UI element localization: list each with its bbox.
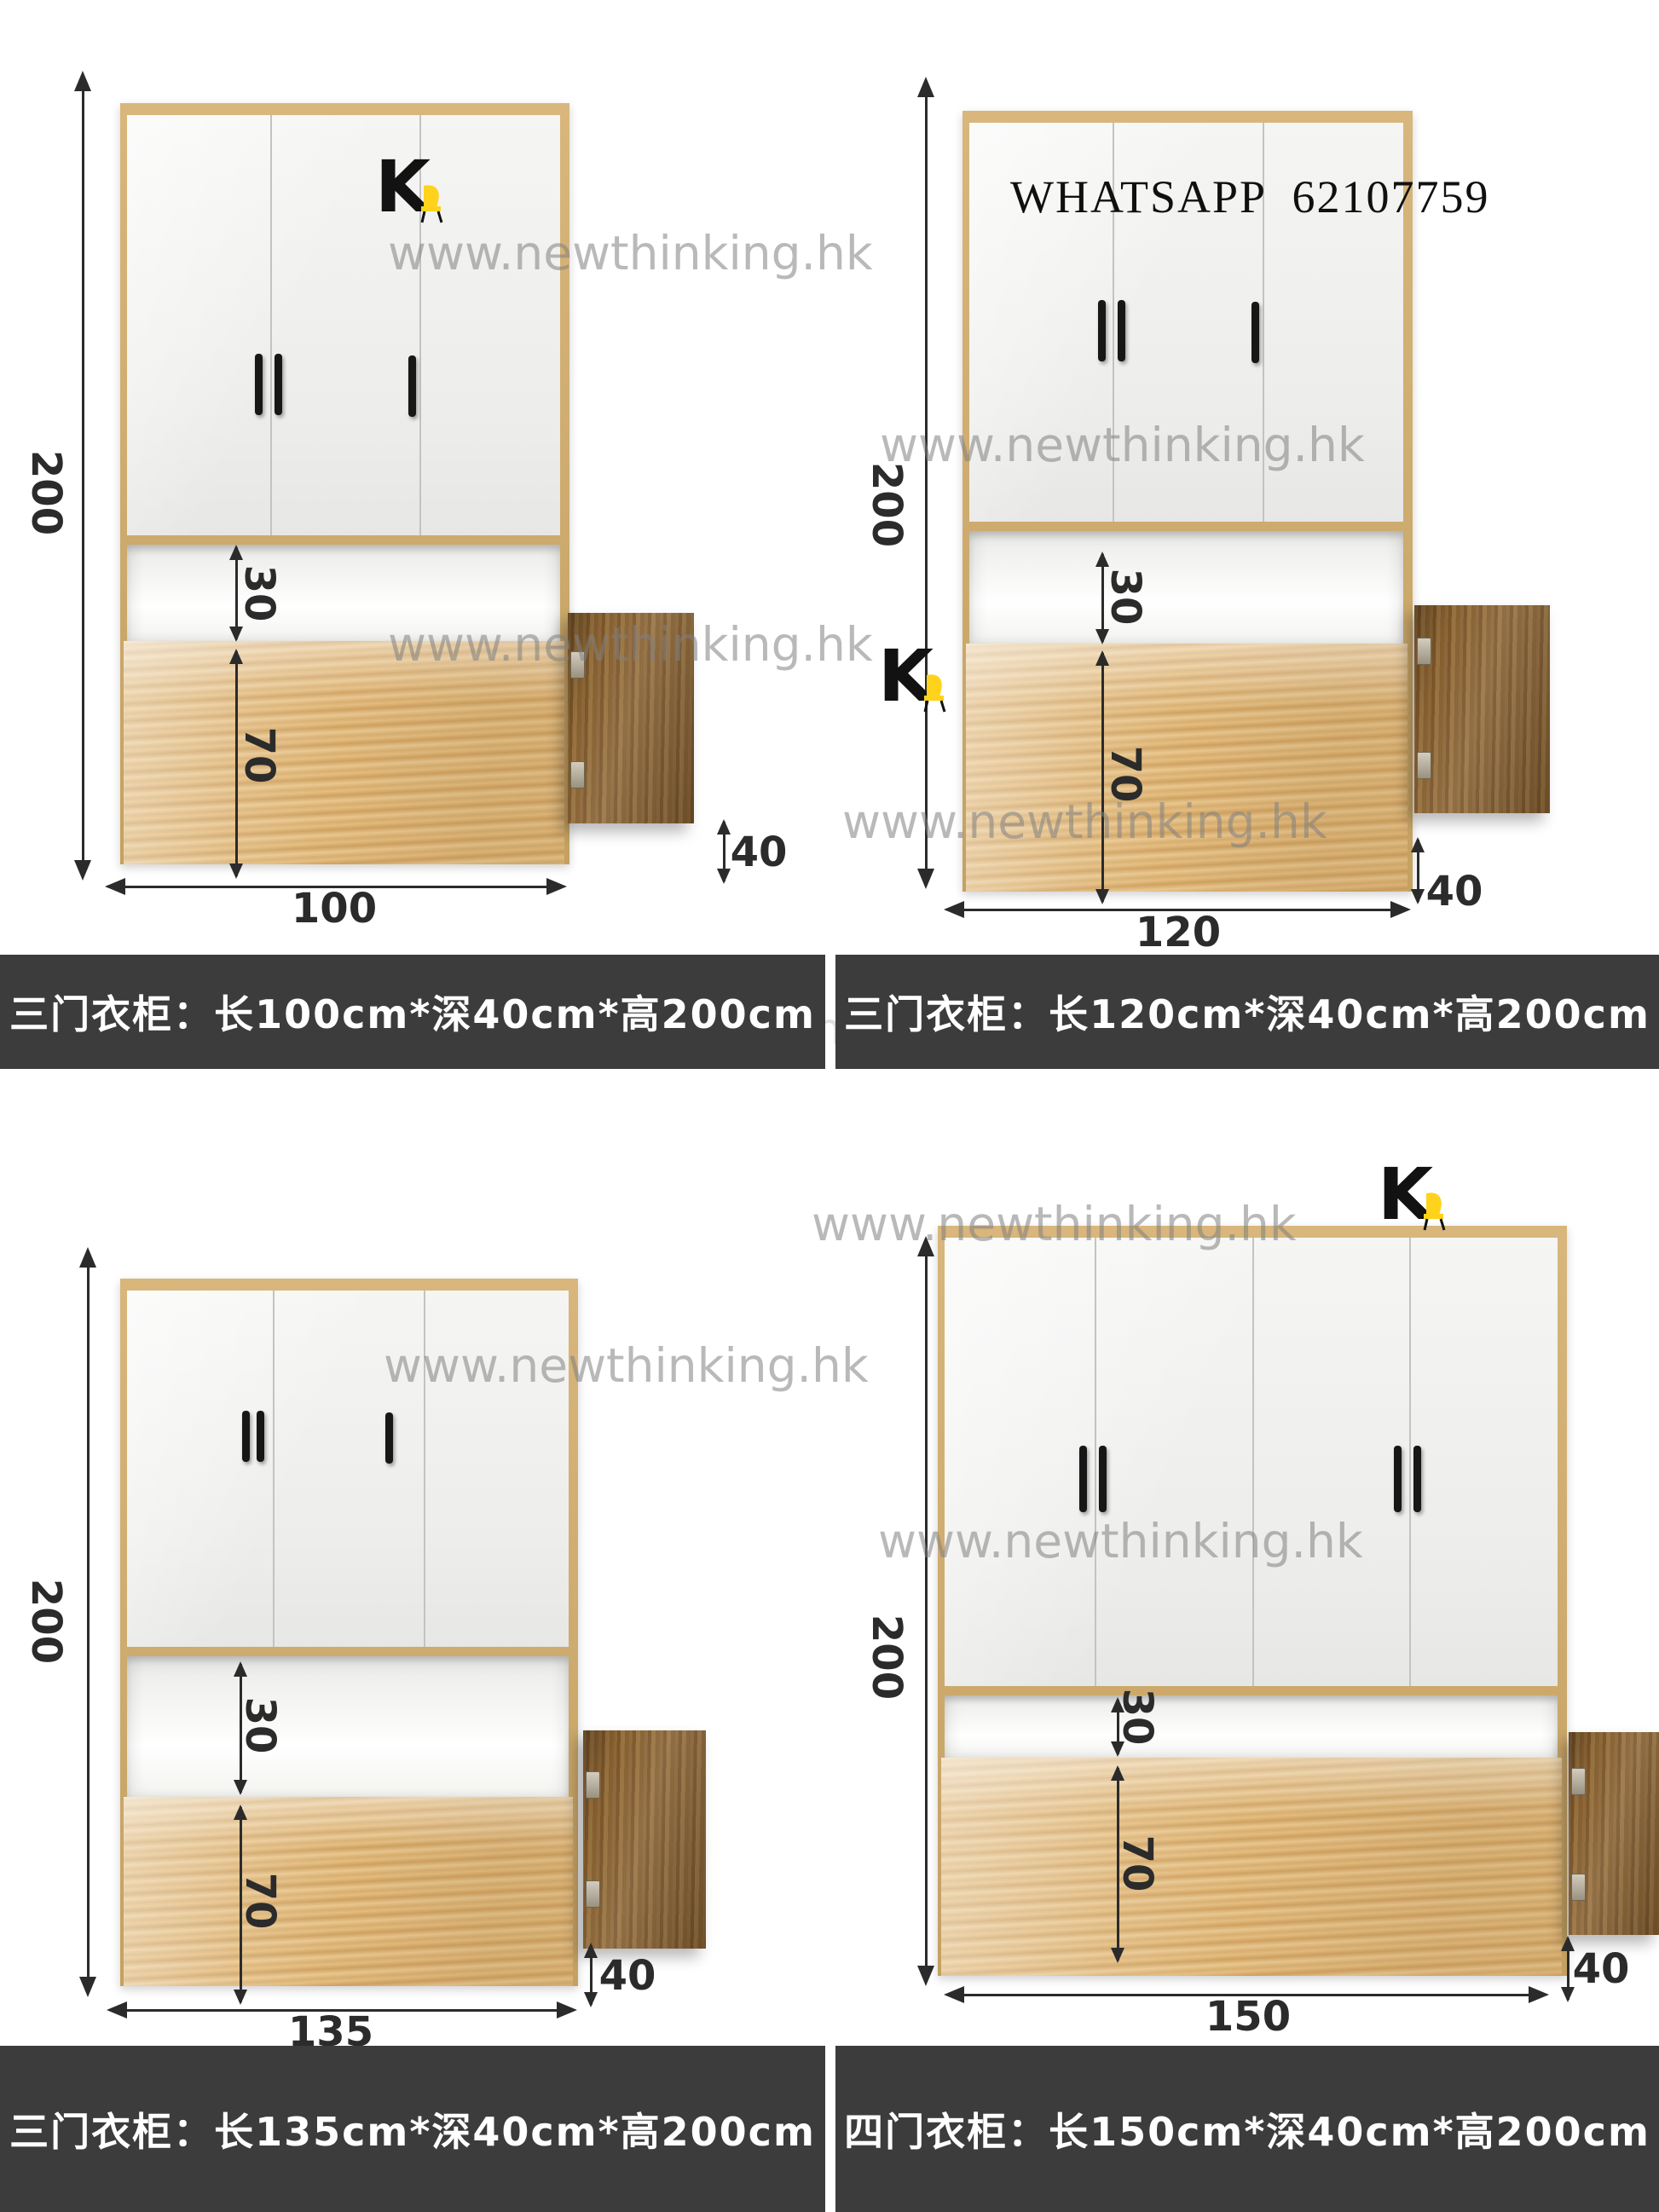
hinge (1417, 752, 1431, 779)
wardrobe-image (938, 1226, 1567, 1976)
height-dimension-arrow (87, 1251, 90, 1993)
lower-cabinet (941, 1758, 1562, 1976)
door-handle (275, 354, 282, 415)
open-shelf (945, 1695, 1558, 1758)
door-handle (255, 354, 263, 415)
height-dimension-arrow (925, 81, 928, 885)
caption-bar: 四门衣柜：长150cm*深40cm*高200cm (835, 2046, 1659, 2212)
hinge (586, 1771, 600, 1799)
brand-logo: K (375, 155, 438, 223)
watermark: www.newthinking.hk (880, 418, 1365, 472)
door-handle (385, 1412, 393, 1464)
height-dimension-label: 200 (20, 437, 72, 548)
width-dimension-label: 120 (1093, 909, 1263, 956)
wardrobe-image (120, 103, 569, 864)
door-handle (1413, 1446, 1421, 1512)
door-handle (257, 1411, 264, 1462)
watermark: www.newthinking.hk (842, 794, 1327, 849)
chair-icon (416, 184, 447, 223)
door-handle (1098, 300, 1106, 361)
door-divider (270, 115, 272, 535)
height-dimension-arrow (82, 75, 84, 876)
chair-icon (1419, 1192, 1449, 1231)
hinge (1571, 1874, 1586, 1901)
wardrobe-doors (127, 115, 560, 535)
door-divider (1409, 1238, 1411, 1686)
height-dimension-arrow (925, 1240, 928, 1982)
open-door-panel (583, 1730, 706, 1949)
watermark: www.newthinking.hk (812, 1197, 1297, 1251)
shelf-dimension-label: 30 (234, 538, 285, 649)
door-divider (1095, 1238, 1096, 1686)
width-dimension-label: 100 (249, 885, 419, 933)
height-dimension-label: 200 (20, 1566, 72, 1677)
lower-cabinet (124, 641, 564, 864)
caption-text: 三门衣柜：长100cm*深40cm*高200cm (9, 984, 816, 1040)
door-divider (273, 1291, 275, 1647)
brand-logo: K (1378, 1163, 1441, 1231)
shelf-dimension-label: 30 (1112, 1661, 1163, 1772)
lower-cabinet (966, 644, 1408, 892)
open-door-panel (1569, 1732, 1659, 1935)
door-handle (1079, 1446, 1087, 1512)
lower-dimension-label: 70 (234, 700, 285, 811)
depth-dimension-label: 40 (1408, 868, 1501, 915)
watermark: www.newthinking.hk (388, 226, 873, 280)
shelf-dimension-label: 30 (234, 1670, 286, 1781)
lower-dimension-label: 70 (234, 1845, 286, 1956)
caption-text: 三门衣柜：长135cm*深40cm*高200cm (9, 2101, 816, 2157)
watermark: www.newthinking.hk (384, 1338, 869, 1393)
door-handle (408, 355, 416, 417)
caption-bar: 三门衣柜：长120cm*深40cm*高200cm (835, 955, 1659, 1069)
door-handle (1394, 1446, 1402, 1512)
watermark: www.newthinking.hk (388, 617, 873, 672)
chair-icon (919, 673, 950, 713)
wardrobe-image (962, 111, 1413, 892)
door-handle (1099, 1446, 1107, 1512)
caption-text: 四门衣柜：长150cm*深40cm*高200cm (844, 2101, 1650, 2157)
watermark: www.newthinking.hk (878, 1514, 1363, 1568)
caption-text: 三门衣柜：长120cm*深40cm*高200cm (844, 984, 1650, 1040)
door-handle (1251, 302, 1259, 363)
hinge (570, 761, 585, 788)
depth-dimension-label: 40 (1554, 1945, 1648, 1993)
width-dimension-label: 150 (1163, 1993, 1333, 2041)
open-shelf (969, 531, 1403, 644)
lower-dimension-label: 70 (1112, 1808, 1163, 1919)
product-spec-sheet: 200 30 70 100 40 200 (0, 0, 1659, 2212)
shelf-dimension-label: 30 (1100, 541, 1151, 652)
brand-logo: K (878, 644, 941, 713)
open-shelf (127, 1656, 569, 1797)
whatsapp-contact: WHATSAPP 62107759 (1010, 170, 1490, 223)
depth-dimension-label: 40 (712, 829, 806, 876)
height-dimension-label: 200 (861, 1602, 912, 1712)
depth-dimension-label: 40 (581, 1952, 674, 2000)
caption-bar: 三门衣柜：长100cm*深40cm*高200cm (0, 955, 825, 1069)
hinge (1417, 638, 1431, 665)
open-door-panel (1414, 605, 1550, 813)
hinge (586, 1880, 600, 1908)
wardrobe-doors (945, 1238, 1558, 1686)
door-handle (242, 1411, 250, 1462)
hinge (1571, 1768, 1586, 1795)
lower-cabinet (124, 1797, 573, 1986)
door-divider (1252, 1238, 1254, 1686)
caption-bar: 三门衣柜：长135cm*深40cm*高200cm (0, 2046, 825, 2212)
door-handle (1118, 300, 1125, 361)
